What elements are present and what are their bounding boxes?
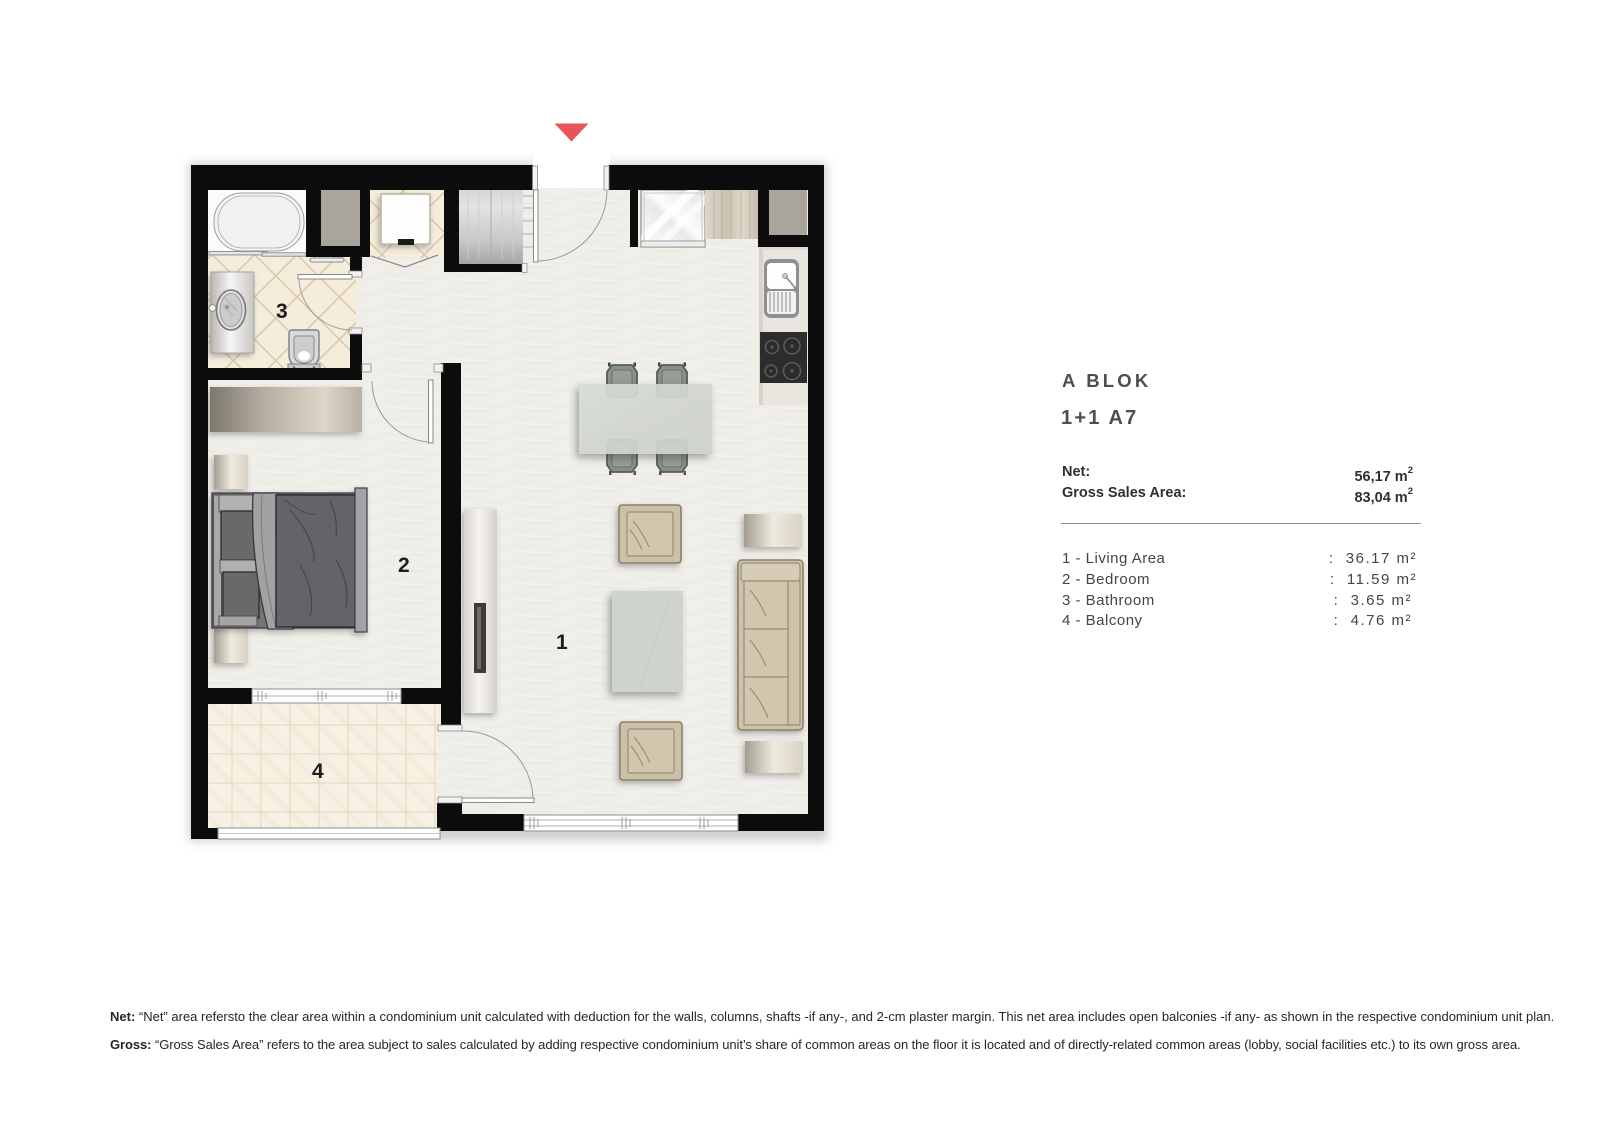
svg-text:3: 3 xyxy=(276,300,288,323)
svg-text:2: 2 xyxy=(398,554,410,577)
svg-text:1: 1 xyxy=(556,631,568,654)
svg-text:4: 4 xyxy=(312,760,324,783)
